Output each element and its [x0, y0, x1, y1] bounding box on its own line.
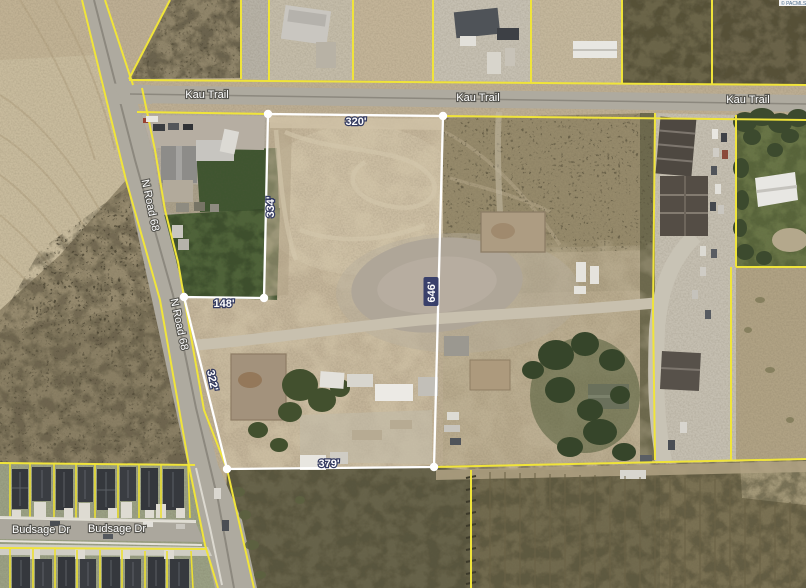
svg-text:Budsage Dr: Budsage Dr	[12, 524, 70, 536]
svg-text:320': 320'	[346, 116, 367, 128]
svg-text:Kau Trail: Kau Trail	[185, 89, 228, 101]
svg-text:Kau Trail: Kau Trail	[456, 92, 499, 104]
svg-text:646': 646'	[426, 281, 438, 302]
svg-text:© PACMLS: © PACMLS	[781, 0, 806, 7]
svg-text:148': 148'	[214, 298, 235, 310]
svg-text:334': 334'	[265, 196, 277, 217]
svg-text:Kau Trail: Kau Trail	[726, 94, 769, 106]
svg-text:Budsage Dr: Budsage Dr	[88, 523, 146, 535]
svg-text:379': 379'	[319, 458, 340, 470]
